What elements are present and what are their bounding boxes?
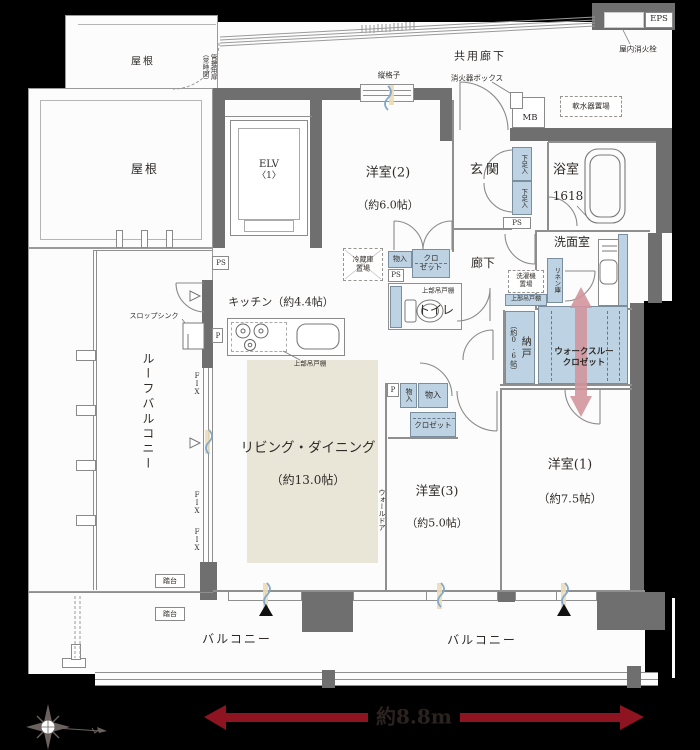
ld-floor [247, 360, 378, 563]
window-lattice [360, 84, 414, 102]
fence-top-line [93, 250, 213, 251]
roof-upper-label: 屋根 [131, 56, 155, 68]
toilet-cabinet-label: 上部吊戸棚 [422, 287, 455, 294]
width-dimension-label: 約8.8m [376, 706, 452, 729]
wall-bottom-center-pier [302, 592, 353, 632]
ld-storage-a-label: 物入 [405, 388, 413, 402]
fridge-label: 冷蔵庫 置場 [353, 255, 374, 273]
extinguisher-box-label: 消火器ボックス [451, 75, 503, 84]
wall-kitchen-west-pier [202, 280, 213, 368]
bathroom-size: 1618 [553, 190, 584, 204]
window-west-fix [203, 368, 213, 562]
eps-label: EPS [650, 15, 668, 25]
partition-bath-north [548, 141, 656, 143]
roof-lower-label: 屋根 [131, 163, 159, 177]
wall-east-mid [648, 233, 662, 303]
fix-label-1: FIX [193, 372, 201, 396]
p-kitchen-label: P [216, 332, 221, 340]
balcony-post-left [322, 670, 335, 688]
wall-genkan-west [440, 98, 452, 141]
ld-storage-b-label: 物入 [425, 390, 441, 399]
balcony-post-right [627, 666, 641, 688]
partition-wtc-south [500, 384, 632, 386]
roof-upper-area [65, 15, 218, 89]
elevator-car-sill [244, 220, 294, 232]
partition-y1-north [500, 388, 632, 390]
ps-genkan-label: PS [512, 219, 522, 227]
p-ld-label: P [391, 386, 396, 394]
wall-corridor-south [510, 128, 672, 141]
window-ld [228, 591, 302, 601]
entrance-label: 玄関 [470, 164, 502, 179]
wall-bottom-right-block [597, 592, 665, 630]
balcony-left-label: バルコニー [202, 633, 272, 647]
fence-line-b [96, 250, 97, 590]
bathroom-label: 浴室 [553, 164, 579, 179]
y3-closet-label: クロゼット [414, 422, 452, 431]
washstand [598, 239, 619, 306]
top-post-1 [116, 230, 123, 248]
balcony-right-label: バルコニー [447, 634, 517, 648]
partition-y3-north [388, 437, 458, 439]
shoe-cupboard-upper-label: 下足入 [519, 154, 526, 174]
western1-label: 洋室(1) [548, 459, 592, 474]
partition-wash-north [535, 230, 650, 232]
compass-icon [26, 704, 107, 750]
storage-room-label: （約0.6帖） 納戸 [510, 322, 531, 374]
indoor-hydrant-label: 屋内消火栓 [619, 46, 657, 55]
hydrant-box [604, 12, 644, 28]
western3-label: 洋室(3) [416, 484, 459, 498]
extinguisher-box-shape [510, 92, 523, 109]
ps-toilet-label: PS [391, 271, 401, 279]
floor-plan: 屋根 屋根 ELV 〈1〉 管理用扉 （常時閉） 共用廊下 EPS 屋内消火栓 … [0, 0, 700, 750]
western3-size: （約5.0帖） [406, 518, 468, 531]
linen-label: リネン庫 [552, 267, 559, 293]
partition-y3-y1 [500, 389, 502, 592]
wall-elv-east [310, 88, 322, 248]
wall-sw-corner [200, 562, 217, 600]
balcony-right-edge [672, 598, 675, 678]
wtc-label: ウォークスルー クロゼット [554, 347, 613, 369]
window-y1 [515, 591, 597, 601]
ld-size: （約13.0帖） [271, 474, 346, 488]
fence-post-2 [76, 405, 96, 416]
western2-label: 洋室(2) [366, 167, 410, 182]
wall-door-label: ウォールドア [378, 489, 386, 531]
mgmt-door-label: 管理用扉 （常時閉） [201, 51, 217, 84]
drain-pipe-riser [71, 644, 81, 660]
water-softener-label: 軟水器置場 [572, 103, 610, 112]
hall-storage-label: 物入 [393, 255, 407, 263]
elv-top-line [225, 116, 312, 117]
shoe-cupboard-lower-label: 下足入 [519, 188, 526, 208]
roof-upper-inner-line [78, 24, 216, 25]
roof-balcony-area [28, 248, 213, 592]
window-y3 [353, 591, 498, 601]
balcony-area [95, 592, 645, 674]
top-post-3 [166, 230, 173, 248]
wall-east-lower [630, 303, 644, 600]
fence-line-a [93, 250, 94, 590]
mb-label: MB [523, 114, 538, 124]
ps-kitchen-label: PS [216, 259, 226, 267]
toilet-cabinet-strip [390, 286, 402, 328]
kitchen-stove-zone [231, 322, 287, 352]
lattice-label: 縦格子 [378, 72, 401, 81]
roof-balcony-label: ルーフバルコニー [140, 352, 154, 472]
fence-post-4 [76, 515, 96, 526]
western1-size: （約7.5帖） [538, 492, 602, 505]
washroom-label: 洗面室 [554, 236, 590, 250]
step-upper-label: 踏台 [163, 577, 177, 585]
wall-east-upper [656, 141, 672, 233]
wall-elv-west [213, 88, 225, 248]
wash-cabinet-label: 上部吊戸棚 [511, 297, 541, 304]
partition-bath-west [547, 142, 549, 232]
balcony-outer-wall [95, 672, 658, 686]
step-lower-label: 踏台 [163, 610, 177, 618]
elevator-label: ELV 〈1〉 [257, 159, 281, 181]
wash-side-cabinet [618, 234, 628, 306]
fix-label-2: FIX [193, 491, 201, 515]
kitchen-label: キッチン（約4.4帖） [228, 297, 334, 310]
slop-sink-label: スロップシンク [130, 312, 179, 320]
ld-label: リビング・ダイニング [241, 441, 376, 457]
toilet-label: トイレ [418, 304, 454, 318]
hallway-label: 廊下 [471, 257, 495, 271]
fence-post-1 [76, 350, 96, 361]
common-corridor-label: 共用廊下 [454, 51, 506, 64]
roof-lower-inner-line [40, 100, 202, 240]
partition-ld-east [385, 383, 387, 592]
roofbalcony-south-line [28, 592, 213, 593]
wall-top-a [213, 88, 365, 100]
fix-label-3: FIX [193, 528, 201, 552]
fence-post-3 [76, 460, 96, 471]
top-post-2 [141, 230, 148, 248]
wtc-fill [538, 306, 628, 384]
y2-closet-label: クロ ゼット [420, 254, 443, 273]
western2-size: （約6.0帖） [357, 200, 419, 213]
washer-label: 洗濯機 置場 [516, 273, 536, 289]
kitchen-cabinet-label: 上部吊戸棚 [294, 360, 327, 367]
